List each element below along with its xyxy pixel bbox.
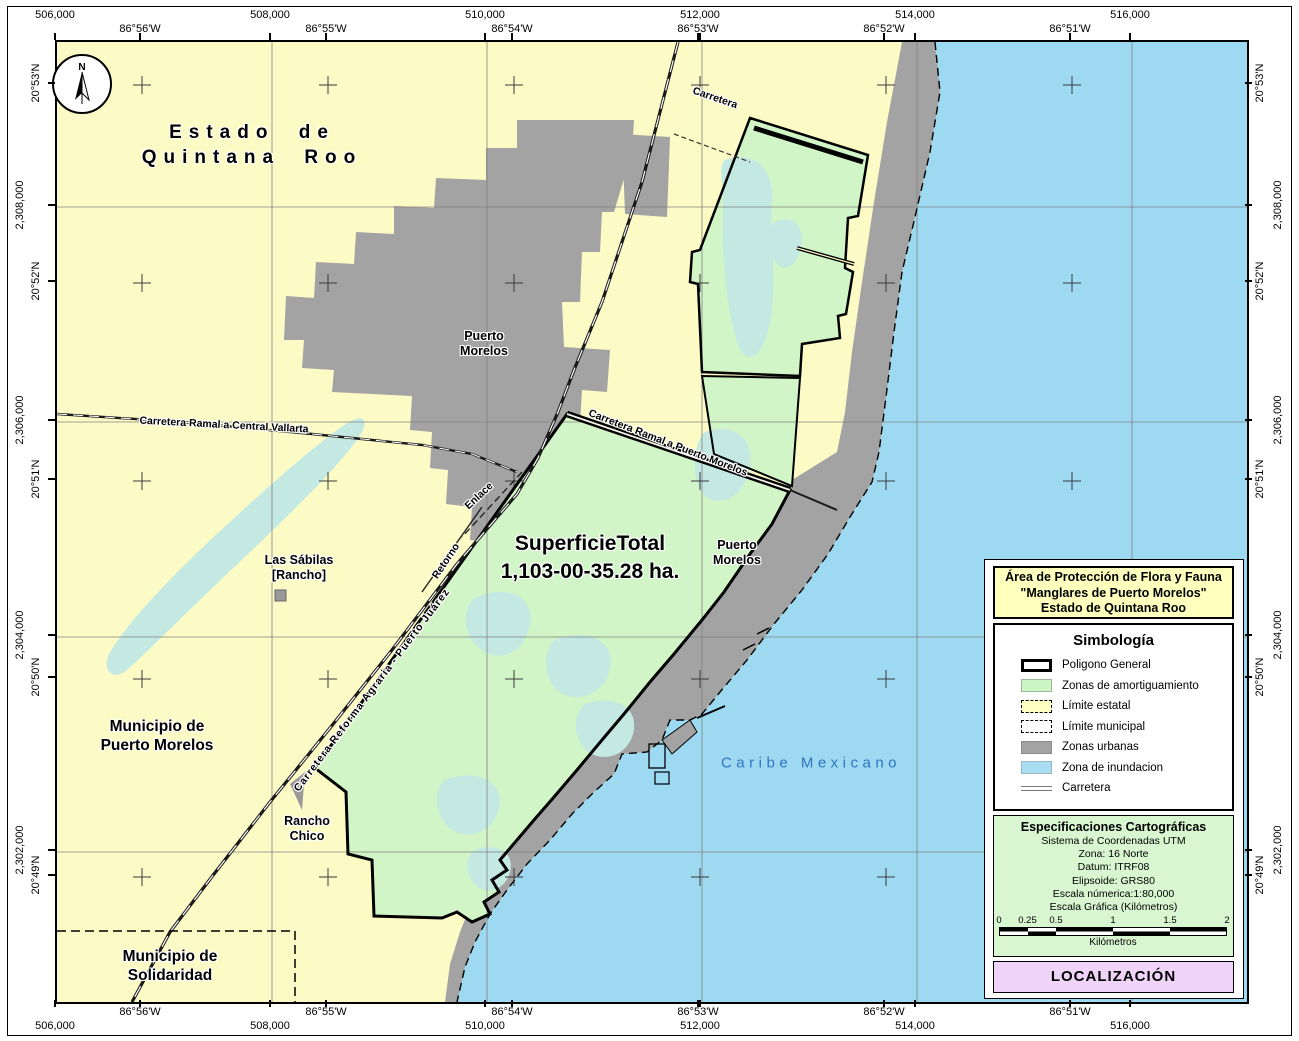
frame-tick — [511, 33, 513, 40]
utm-northing-label-left: 2,308,000 — [14, 181, 26, 230]
utm-northing-label-left: 2,304,000 — [14, 611, 26, 660]
map-document: N Estado de Quintana Roo Municipio de Pu… — [0, 0, 1299, 1041]
legend-swatch-inundacion — [1021, 761, 1052, 774]
estado-line2: Quintana Roo — [142, 145, 363, 170]
latitude-label-left: 20°51'N — [30, 460, 42, 499]
legend-item-label: Límite estatal — [1062, 700, 1130, 712]
legend-swatch-municipal — [1021, 720, 1052, 733]
utm-easting-label-bottom: 510,000 — [465, 1020, 505, 1032]
frame-tick — [139, 1000, 141, 1007]
legend-item-label: Zonas urbanas — [1062, 741, 1139, 753]
latitude-label-right: 20°51'N — [1254, 460, 1266, 499]
latitude-label-right: 20°52'N — [1254, 262, 1266, 301]
frame-tick — [48, 419, 55, 421]
scale-bar-unit: Kilómetros — [999, 937, 1227, 948]
frame-tick — [1245, 874, 1252, 876]
legend-item-label: Poligono General — [1062, 659, 1151, 671]
latitude-label-left: 20°52'N — [30, 262, 42, 301]
latitude-label-left: 20°49'N — [30, 856, 42, 895]
scale-bar-graphic — [999, 927, 1227, 937]
longitude-label-bottom: 86°53'W — [677, 1006, 718, 1018]
utm-easting-label-bottom: 512,000 — [680, 1020, 720, 1032]
frame-tick — [914, 33, 916, 40]
caribe-mexicano-label: Caribe Mexicano — [721, 755, 901, 772]
scale-bar-tick-label: 1.5 — [1163, 915, 1176, 926]
latitude-label-left: 20°53'N — [30, 64, 42, 103]
legend-item: Carretera — [995, 778, 1232, 799]
map-title-box: Área de Protección de Flora y Fauna "Man… — [993, 566, 1234, 619]
utm-northing-label-right: 2,308,000 — [1272, 181, 1284, 230]
frame-tick — [511, 1000, 513, 1007]
frame-tick — [1069, 33, 1071, 40]
latitude-label-left: 20°50'N — [30, 658, 42, 697]
puerto-morelos-port-label: Puerto Morelos — [713, 538, 761, 568]
estado-quintana-roo-label: Estado de Quintana Roo — [142, 120, 363, 170]
legend-item: Poligono General — [995, 655, 1232, 676]
legend-item: Límite estatal — [995, 696, 1232, 717]
utm-easting-label-top: 506,000 — [35, 9, 75, 21]
frame-tick — [269, 1000, 271, 1007]
scale-bar-tick-label: 0.5 — [1049, 915, 1062, 926]
utm-easting-label-top: 512,000 — [680, 9, 720, 21]
utm-northing-label-left: 2,302,000 — [14, 826, 26, 875]
utm-northing-label-right: 2,304,000 — [1272, 611, 1284, 660]
legend-item-label: Límite municipal — [1062, 721, 1145, 733]
legend-item-label: Zonas de amortiguamiento — [1062, 680, 1199, 692]
utm-easting-label-bottom: 516,000 — [1110, 1020, 1150, 1032]
frame-tick — [139, 33, 141, 40]
longitude-label-bottom: 86°51'W — [1049, 1006, 1090, 1018]
utm-easting-label-bottom: 508,000 — [250, 1020, 290, 1032]
urban-zone-small — [622, 134, 670, 217]
frame-tick — [54, 1000, 56, 1007]
map-title-line2: "Manglares de Puerto Morelos" — [995, 586, 1232, 602]
longitude-label-bottom: 86°55'W — [305, 1006, 346, 1018]
utm-easting-label-bottom: 514,000 — [895, 1020, 935, 1032]
legend-swatch-poligono — [1021, 659, 1052, 672]
frame-tick — [697, 33, 699, 40]
frame-tick — [325, 33, 327, 40]
municipio-solidaridad-label: Municipio de Solidaridad — [123, 947, 218, 985]
longitude-label-bottom: 86°56'W — [119, 1006, 160, 1018]
specs-line: Sistema de Coordenadas UTM — [994, 835, 1233, 848]
specs-title: Especificaciones Cartográficas — [994, 820, 1233, 834]
specs-line: Escala Gráfica (Kilómetros) — [994, 901, 1233, 914]
frame-tick — [484, 1000, 486, 1007]
utm-easting-label-top: 516,000 — [1110, 9, 1150, 21]
legend-item-label: Carretera — [1062, 782, 1111, 794]
las-sabilas-marker — [275, 590, 286, 601]
las-sabilas-label: Las Sábilas [Rancho] — [265, 553, 334, 583]
superficie-total-label: SuperficieTotal 1,103-00-35.28 ha. — [501, 530, 680, 586]
legend-item: Zonas de amortiguamiento — [995, 676, 1232, 697]
utm-easting-label-top: 514,000 — [895, 9, 935, 21]
frame-tick — [1129, 1000, 1131, 1007]
estado-line1: Estado de — [142, 120, 363, 145]
info-panel: Área de Protección de Flora y Fauna "Man… — [984, 559, 1244, 999]
frame-tick — [54, 33, 56, 40]
frame-tick — [48, 204, 55, 206]
frame-tick — [48, 874, 55, 876]
frame-tick — [883, 1000, 885, 1007]
scale-bar: 00.250.511.52 Kilómetros — [999, 915, 1227, 955]
frame-tick — [1245, 204, 1252, 206]
scale-bar-tick-label: 2 — [1224, 915, 1229, 926]
frame-tick — [699, 1000, 701, 1007]
legend-item: Zona de inundacion — [995, 758, 1232, 779]
utm-northing-label-right: 2,302,000 — [1272, 826, 1284, 875]
legend-swatch-urbanas — [1021, 741, 1052, 754]
frame-tick — [1245, 82, 1252, 84]
legend-swatch-carretera — [1021, 786, 1052, 791]
utm-easting-label-bottom: 506,000 — [35, 1020, 75, 1032]
utm-northing-label-left: 2,306,000 — [14, 396, 26, 445]
rancho-chico-label: Rancho Chico — [284, 814, 330, 844]
latitude-label-right: 20°50'N — [1254, 658, 1266, 697]
municipio-puerto-morelos-label: Municipio de Puerto Morelos — [101, 717, 214, 755]
legend-box: Simbología Poligono GeneralZonas de amor… — [993, 623, 1234, 811]
longitude-label-bottom: 86°52'W — [863, 1006, 904, 1018]
frame-tick — [699, 33, 701, 40]
frame-tick — [1245, 676, 1252, 678]
frame-tick — [1129, 33, 1131, 40]
legend-swatch-estatal — [1021, 700, 1052, 713]
frame-tick — [484, 33, 486, 40]
map-title-line1: Área de Protección de Flora y Fauna — [995, 570, 1232, 586]
longitude-label-bottom: 86°54'W — [491, 1006, 532, 1018]
specs-lines: Sistema de Coordenadas UTMZona: 16 Norte… — [994, 835, 1233, 914]
legend-item: Zonas urbanas — [995, 737, 1232, 758]
legend-item: Límite municipal — [995, 717, 1232, 738]
latitude-label-right: 20°53'N — [1254, 64, 1266, 103]
frame-tick — [1245, 419, 1252, 421]
frame-tick — [48, 634, 55, 636]
specs-line: Elipsoide: GRS80 — [994, 875, 1233, 888]
frame-tick — [697, 1000, 699, 1007]
frame-tick — [1069, 1000, 1071, 1007]
legend-title: Simbología — [995, 632, 1232, 649]
frame-tick — [1245, 849, 1252, 851]
scale-bar-tick-label: 0 — [996, 915, 1001, 926]
frame-tick — [1245, 634, 1252, 636]
frame-tick — [269, 33, 271, 40]
localizacion-box: LOCALIZACIÓN — [993, 961, 1234, 993]
frame-tick — [48, 280, 55, 282]
specs-line: Escala númerica:1:80,000 — [994, 888, 1233, 901]
utm-northing-label-right: 2,306,000 — [1272, 396, 1284, 445]
frame-tick — [48, 676, 55, 678]
scale-bar-tick-label: 0.25 — [1018, 915, 1037, 926]
frame-tick — [914, 1000, 916, 1007]
map-title-line3: Estado de Quintana Roo — [995, 601, 1232, 617]
north-arrow-n: N — [78, 62, 85, 73]
frame-tick — [1245, 280, 1252, 282]
north-arrow: N — [50, 51, 114, 115]
scale-bar-tick-label: 1 — [1110, 915, 1115, 926]
specs-line: Zona: 16 Norte — [994, 848, 1233, 861]
frame-tick — [48, 82, 55, 84]
frame-tick — [1245, 478, 1252, 480]
frame-tick — [883, 33, 885, 40]
frame-tick — [48, 478, 55, 480]
frame-tick — [48, 849, 55, 851]
legend-item-label: Zona de inundacion — [1062, 762, 1163, 774]
latitude-label-right: 20°49'N — [1254, 856, 1266, 895]
utm-easting-label-top: 510,000 — [465, 9, 505, 21]
legend-items: Poligono GeneralZonas de amortiguamiento… — [995, 655, 1232, 799]
legend-swatch-amortiguamiento — [1021, 679, 1052, 692]
puerto-morelos-town-label: Puerto Morelos — [460, 329, 508, 359]
specs-line: Datum: ITRF08 — [994, 861, 1233, 874]
cartographic-specs-box: Especificaciones Cartográficas Sistema d… — [993, 815, 1234, 957]
utm-easting-label-top: 508,000 — [250, 9, 290, 21]
frame-tick — [325, 1000, 327, 1007]
